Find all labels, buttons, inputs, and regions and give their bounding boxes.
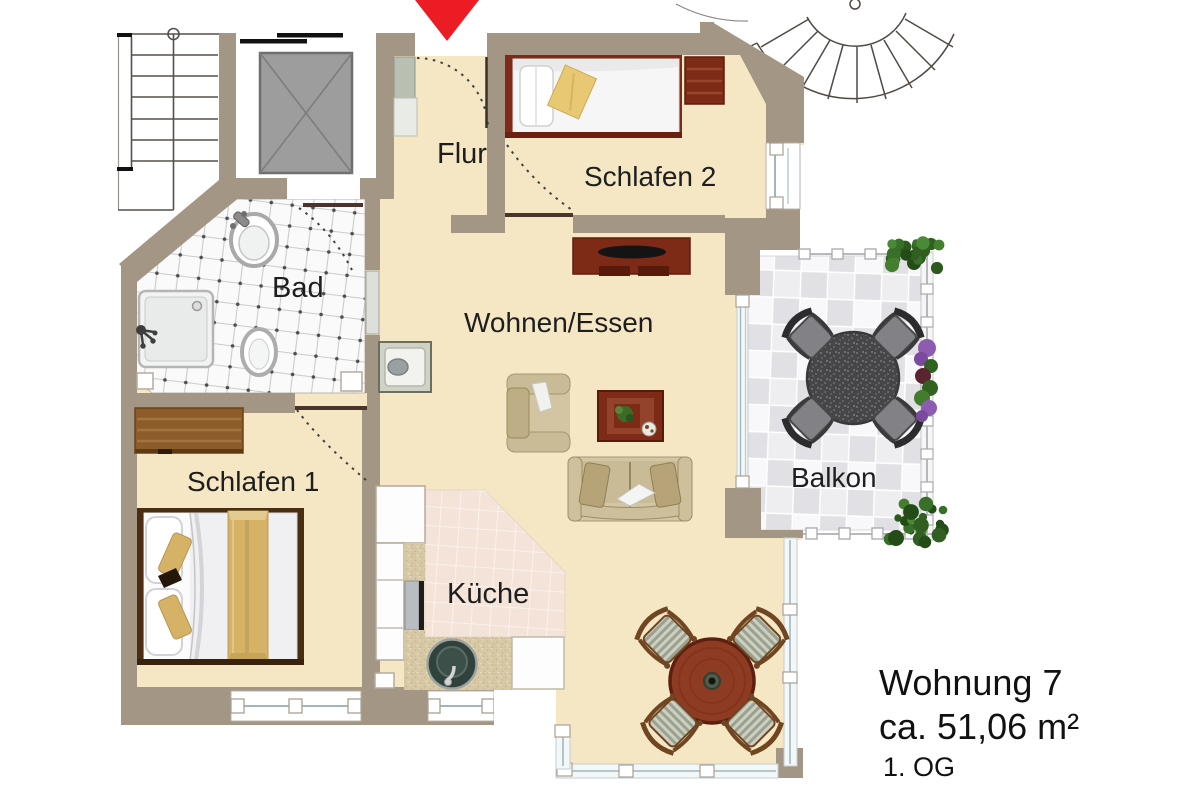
svg-text:Wohnung 7: Wohnung 7 bbox=[879, 662, 1062, 703]
svg-text:Flur: Flur bbox=[437, 138, 487, 170]
svg-text:Wohnen/Essen: Wohnen/Essen bbox=[464, 307, 653, 338]
svg-text:Balkon: Balkon bbox=[791, 462, 877, 493]
svg-text:Schlafen 2: Schlafen 2 bbox=[584, 161, 716, 192]
svg-text:Küche: Küche bbox=[447, 578, 529, 610]
svg-text:1. OG: 1. OG bbox=[883, 752, 955, 782]
svg-text:ca. 51,06 m²: ca. 51,06 m² bbox=[879, 706, 1079, 747]
svg-text:Schlafen 1: Schlafen 1 bbox=[187, 466, 319, 497]
svg-text:Bad: Bad bbox=[272, 272, 324, 304]
